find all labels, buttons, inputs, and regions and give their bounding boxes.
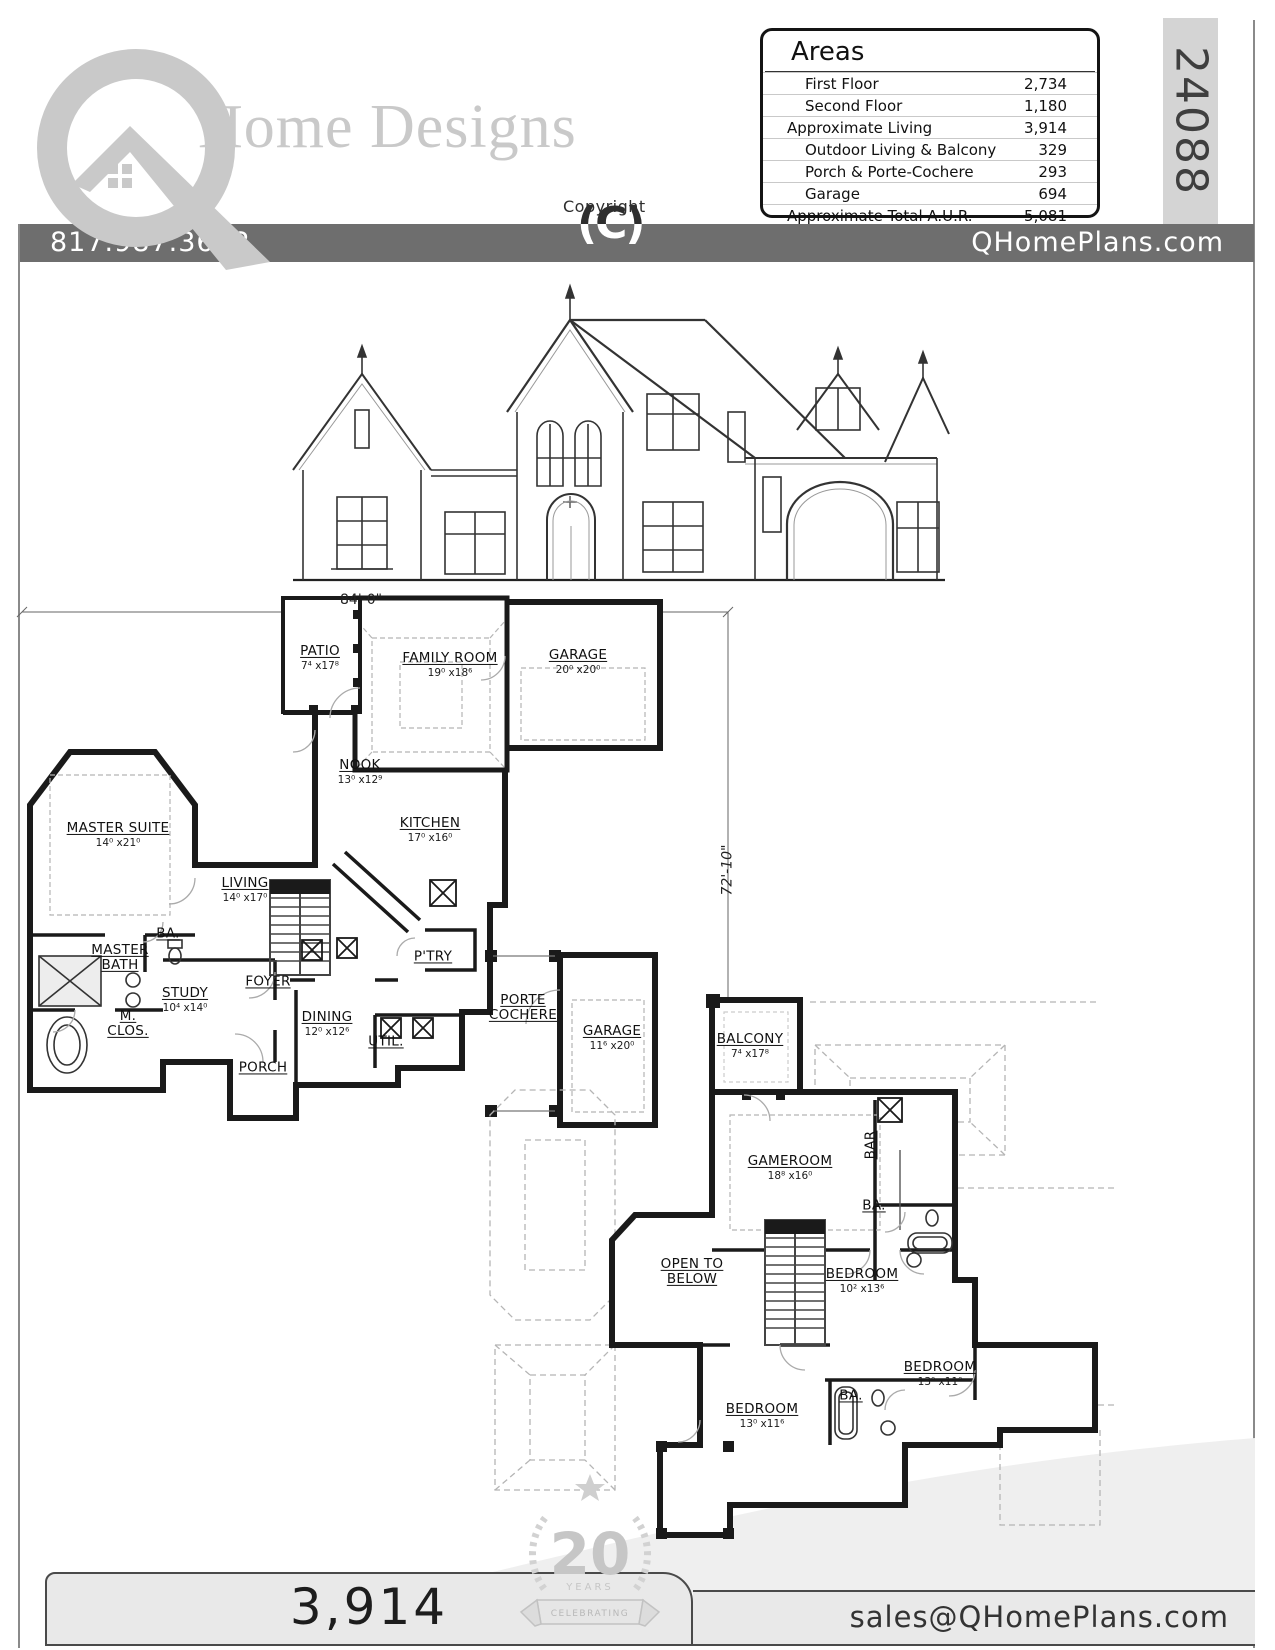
room-label-kitchen: KITCHEN17⁰ x16⁰ <box>400 816 461 844</box>
room-label-living: LIVING14⁰ x17⁰ <box>221 876 268 904</box>
room-label-gameroom: GAMEROOM18⁸ x16⁰ <box>748 1154 833 1182</box>
svg-text:20: 20 <box>550 1520 631 1588</box>
plan-number-strip: 24088 <box>1163 18 1218 224</box>
areas-row-porch: Porch & Porte-Cochere293 <box>763 160 1097 182</box>
areas-row-total: Approximate Total A.U.R.5,081 <box>763 204 1097 226</box>
areas-row-approx-living: Approximate Living3,914 <box>763 116 1097 138</box>
room-label-pantry: P'TRY <box>414 949 452 964</box>
room-label-garage: GARAGE20⁰ x20⁰ <box>549 648 607 676</box>
room-label-bedroom-3: BEDROOM13⁰ x11⁶ <box>726 1402 799 1430</box>
room-label-bedroom-2: BEDROOM13⁰ x11⁰ <box>904 1360 977 1388</box>
areas-row-garage: Garage694 <box>763 182 1097 204</box>
height-dimension: 72'-10" <box>719 845 735 896</box>
contact-email: sales@QHomePlans.com <box>850 1600 1229 1634</box>
room-label-bath-lower: BA. <box>839 1388 862 1403</box>
areas-title: Areas <box>763 31 1097 71</box>
room-label-family-room: FAMILY ROOM19⁰ x18⁶ <box>402 651 497 679</box>
room-label-utility: UTIL. <box>368 1034 403 1049</box>
svg-text:CELEBRATING: CELEBRATING <box>551 1609 630 1619</box>
plan-sheet: Home Designs Areas First Floor2,734 Seco… <box>0 0 1275 1650</box>
q-logo-icon <box>28 40 318 270</box>
room-label-bath: BA. <box>156 926 179 941</box>
room-label-open-to-below: OPEN TOBELOW <box>661 1257 724 1287</box>
room-label-study: STUDY10⁴ x14⁰ <box>162 986 208 1014</box>
copyright-symbol-icon: (C) <box>577 224 644 249</box>
room-label-master-suite: MASTER SUITE14⁰ x21⁰ <box>67 821 170 849</box>
areas-row-first-floor: First Floor2,734 <box>763 72 1097 94</box>
room-label-master-closet: M.CLOS. <box>107 1009 148 1039</box>
room-label-garage-2: GARAGE11⁶ x20⁰ <box>583 1024 641 1052</box>
website-url: QHomePlans.com <box>971 227 1224 258</box>
total-living-sqft: 3,914 <box>290 1578 448 1636</box>
room-label-dining: DINING12⁰ x12⁶ <box>302 1010 353 1038</box>
room-label-bath-upper: BA. <box>862 1198 885 1213</box>
room-label-porte-cochere: PORTECOCHERE <box>489 993 557 1023</box>
room-label-bedroom-1: BEDROOM10² x13⁶ <box>826 1267 899 1295</box>
front-elevation-drawing <box>285 262 955 592</box>
plan-number: 24088 <box>1165 46 1216 196</box>
width-dimension: 84'-0" <box>340 592 382 608</box>
room-label-foyer: FOYER <box>245 974 290 989</box>
room-label-master-bath: MASTERBATH <box>91 943 148 973</box>
room-label-bar: BAR <box>863 1131 878 1160</box>
anniversary-badge: 20 YEARS CELEBRATING <box>515 1468 665 1646</box>
room-label-porch: PORCH <box>239 1060 288 1075</box>
room-label-nook: NOOK13⁰ x12⁹ <box>338 758 383 786</box>
room-label-balcony: BALCONY7⁴ x17⁸ <box>717 1032 784 1060</box>
second-floor-plan-drawing <box>480 950 1120 1550</box>
areas-row-second-floor: Second Floor1,180 <box>763 94 1097 116</box>
svg-text:YEARS: YEARS <box>565 1582 614 1593</box>
room-label-patio: PATIO7⁴ x17⁸ <box>300 644 340 672</box>
areas-row-outdoor: Outdoor Living & Balcony329 <box>763 138 1097 160</box>
areas-table: Areas First Floor2,734 Second Floor1,180… <box>760 28 1100 218</box>
footer-bar: sales@QHomePlans.com <box>693 1590 1255 1646</box>
